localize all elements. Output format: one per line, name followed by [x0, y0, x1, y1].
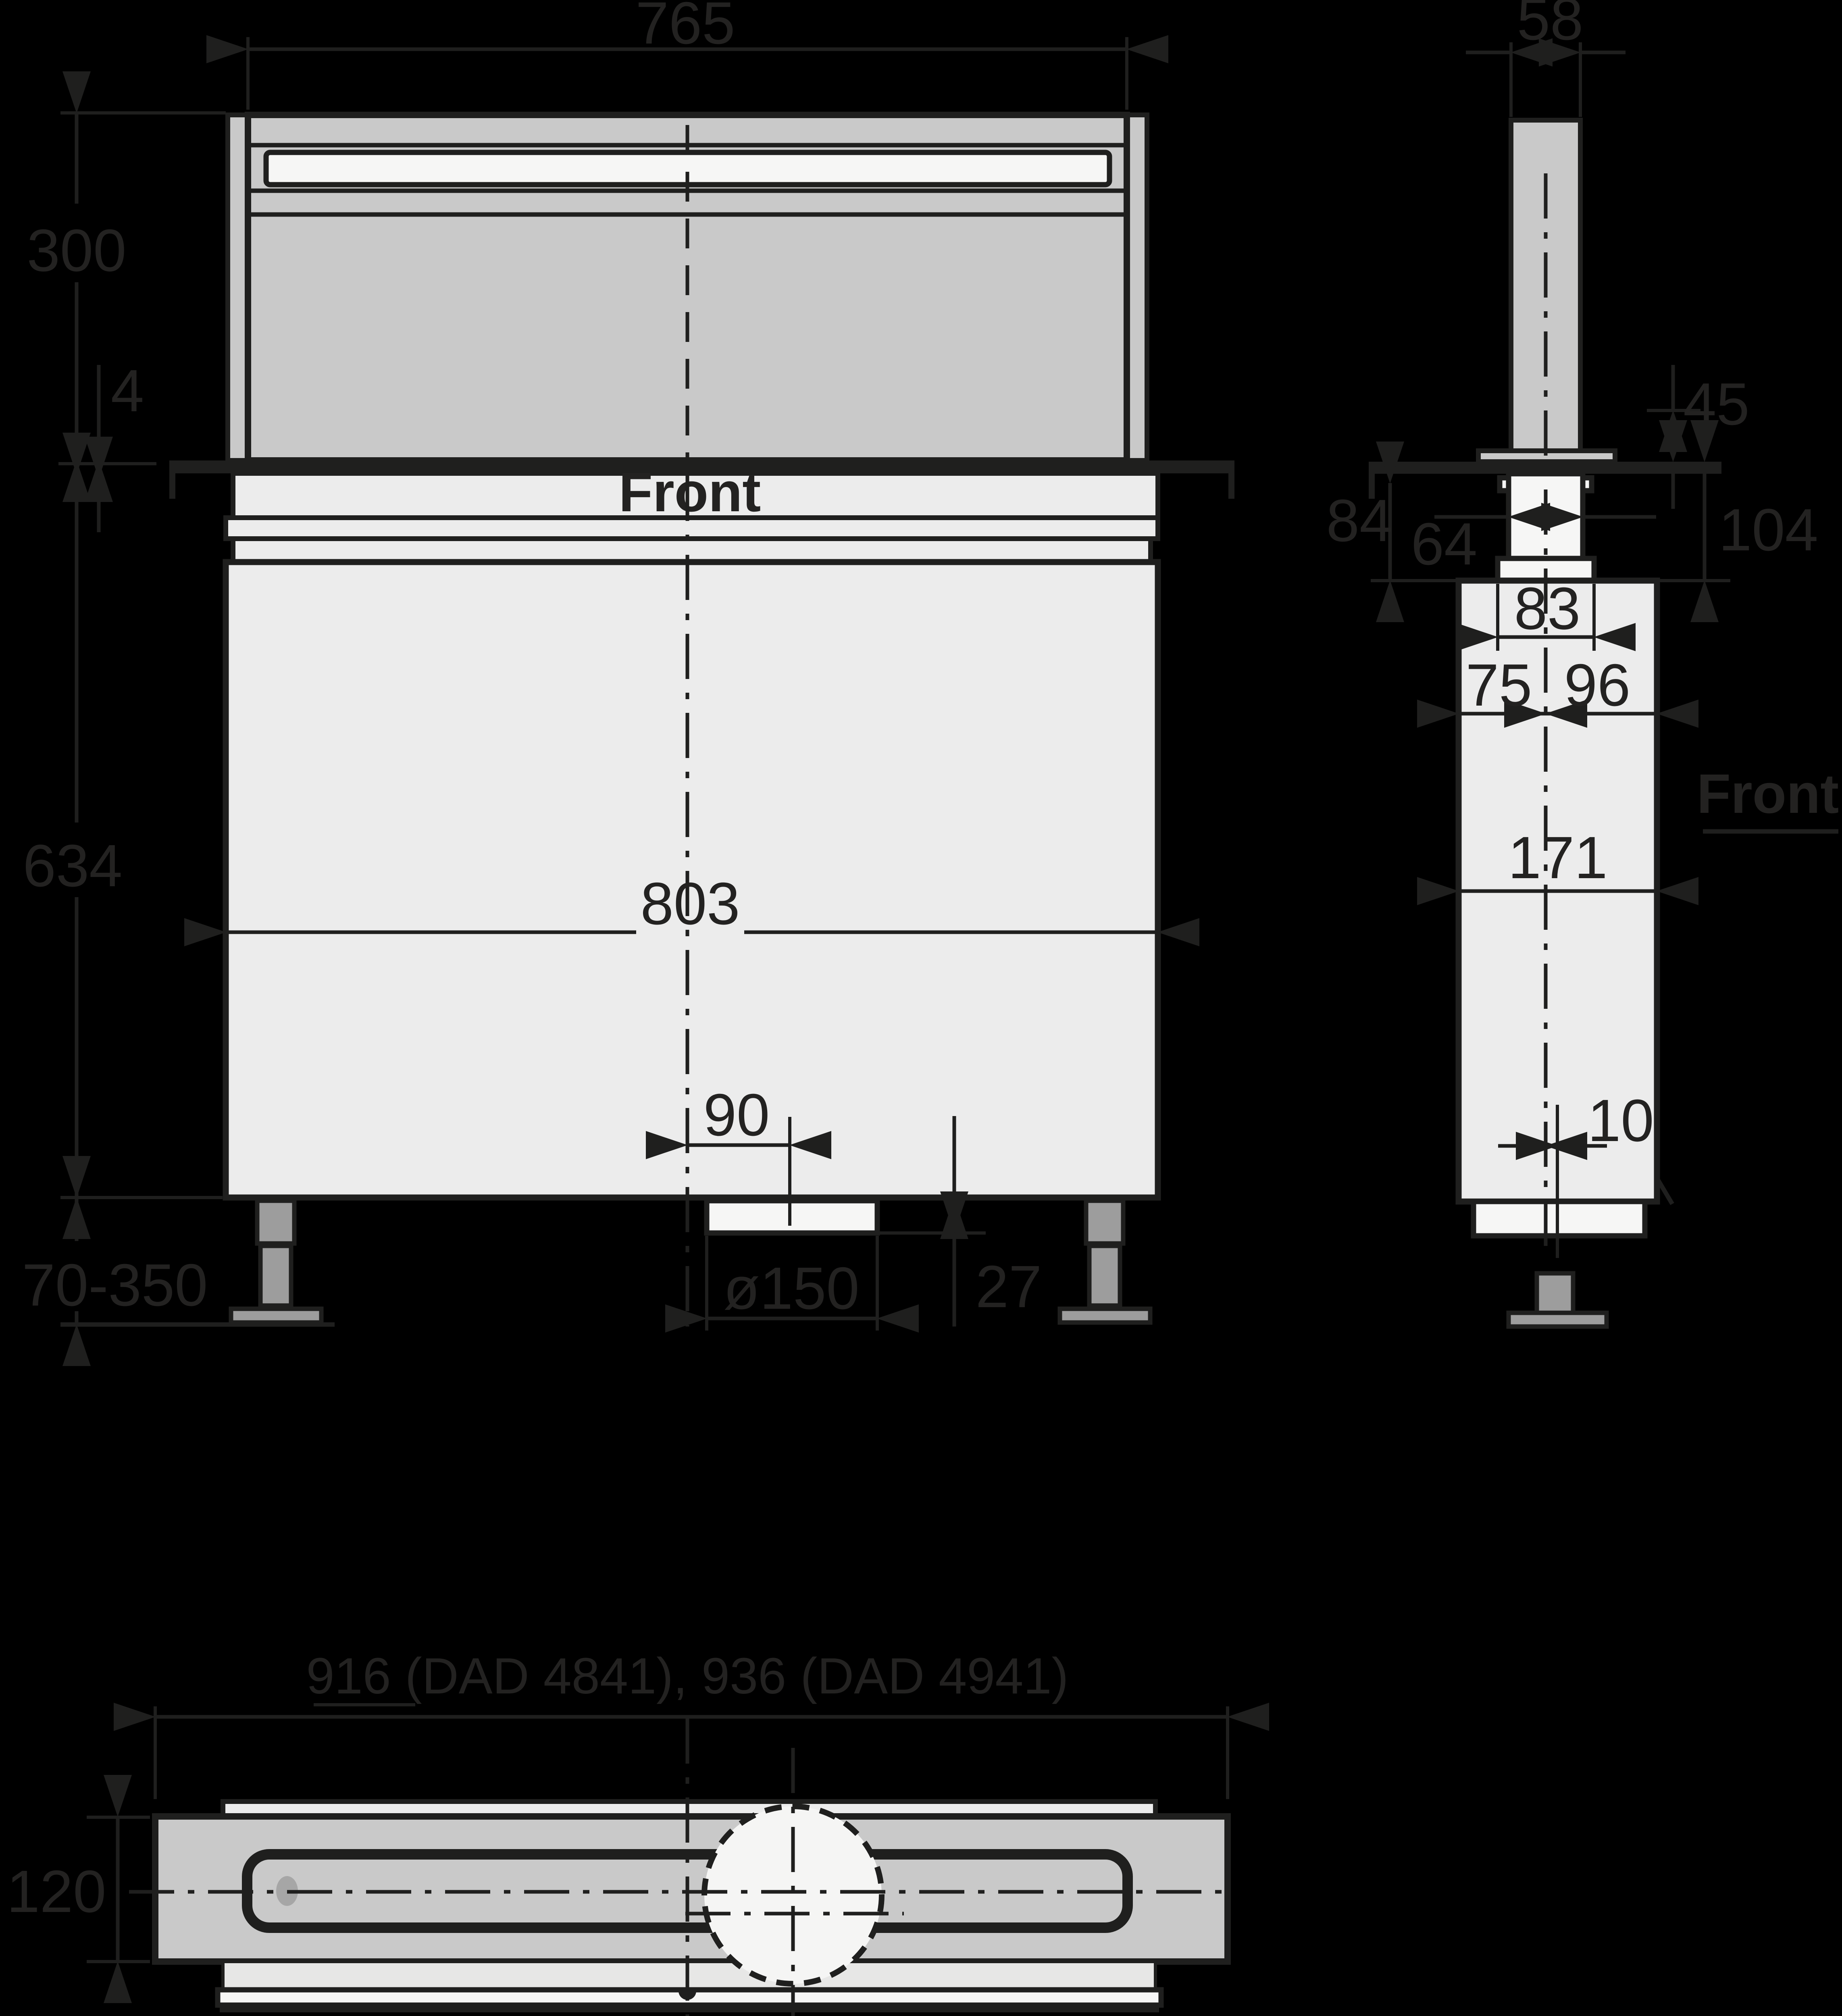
- bottom-main-bar: [155, 1816, 1228, 1962]
- dim-duct-offset: 90: [703, 1082, 770, 1148]
- dim-rear-offset: 96: [1564, 652, 1631, 719]
- foot-base-plate: [1060, 1309, 1150, 1322]
- dim-hood-width: 765: [636, 0, 735, 56]
- dim-recess-depth: 104: [1719, 497, 1818, 563]
- worktop-right-tick: [1228, 460, 1234, 499]
- side-plinth-inset: [1474, 1202, 1645, 1236]
- dim-cabinet-width: 803: [641, 871, 740, 937]
- front-label: Front: [619, 461, 761, 523]
- dim-cabinet-height: 634: [23, 833, 123, 899]
- bottom-view: 916 (DAD 4841), 936 (DAD 4941) 120: [7, 1647, 1234, 2016]
- dim-centre-offset: 10: [1588, 1087, 1654, 1154]
- dim-neck-depth: 64: [1411, 511, 1478, 577]
- adjustable-foot-left: [231, 1201, 321, 1322]
- dim-plate-gap: 4: [111, 358, 144, 424]
- foot-lower-segment: [1089, 1246, 1120, 1306]
- drawing-canvas: Front 765 300 634: [0, 0, 1842, 2016]
- foot-upper-segment: [1086, 1201, 1123, 1243]
- dim-front-offset: 75: [1466, 652, 1532, 719]
- dim-stub-height: 27: [976, 1254, 1042, 1320]
- hood-panel: [228, 115, 1147, 460]
- frame-strip-lower: [233, 539, 1151, 562]
- dim-rear-step: 84: [1326, 487, 1393, 554]
- neck-notch-right: [1583, 478, 1592, 491]
- foot-post: [1537, 1273, 1573, 1313]
- adjustable-foot-right: [1060, 1201, 1150, 1322]
- dim-body-depth: 171: [1508, 825, 1608, 891]
- foot-lower-segment: [260, 1246, 291, 1306]
- foot-base-plate: [231, 1309, 321, 1322]
- bottom-edge-line: [220, 2005, 1159, 2012]
- dim-duct-diameter: ø150: [723, 1255, 859, 1322]
- adjustable-foot-side: [1509, 1273, 1607, 1327]
- dim-collar-height: 45: [1683, 371, 1750, 437]
- front-label-side: Front: [1697, 763, 1839, 825]
- technical-drawing-downdraft-extractor: Front 765 300 634: [0, 0, 1842, 2016]
- foot-base-plate: [1509, 1313, 1607, 1327]
- side-view: 58 45 84 64 104 83 75 96 171 Front: [1326, 0, 1839, 1327]
- front-view: Front 765 300 634: [22, 0, 1234, 1331]
- dim-section-depth: 83: [1514, 575, 1581, 642]
- dim-bar-height: 120: [7, 1858, 106, 1925]
- neck-notch-left: [1500, 478, 1509, 491]
- dim-hood-height: 300: [27, 217, 127, 284]
- dim-duct-width: 58: [1517, 0, 1584, 52]
- bottom-view-title: 916 (DAD 4841), 936 (DAD 4941): [306, 1647, 1069, 1704]
- duct-outlet-stub: [707, 1201, 877, 1233]
- worktop-left-tick: [169, 460, 175, 499]
- dim-foot-range: 70-350: [22, 1252, 208, 1318]
- foot-upper-segment: [257, 1201, 294, 1243]
